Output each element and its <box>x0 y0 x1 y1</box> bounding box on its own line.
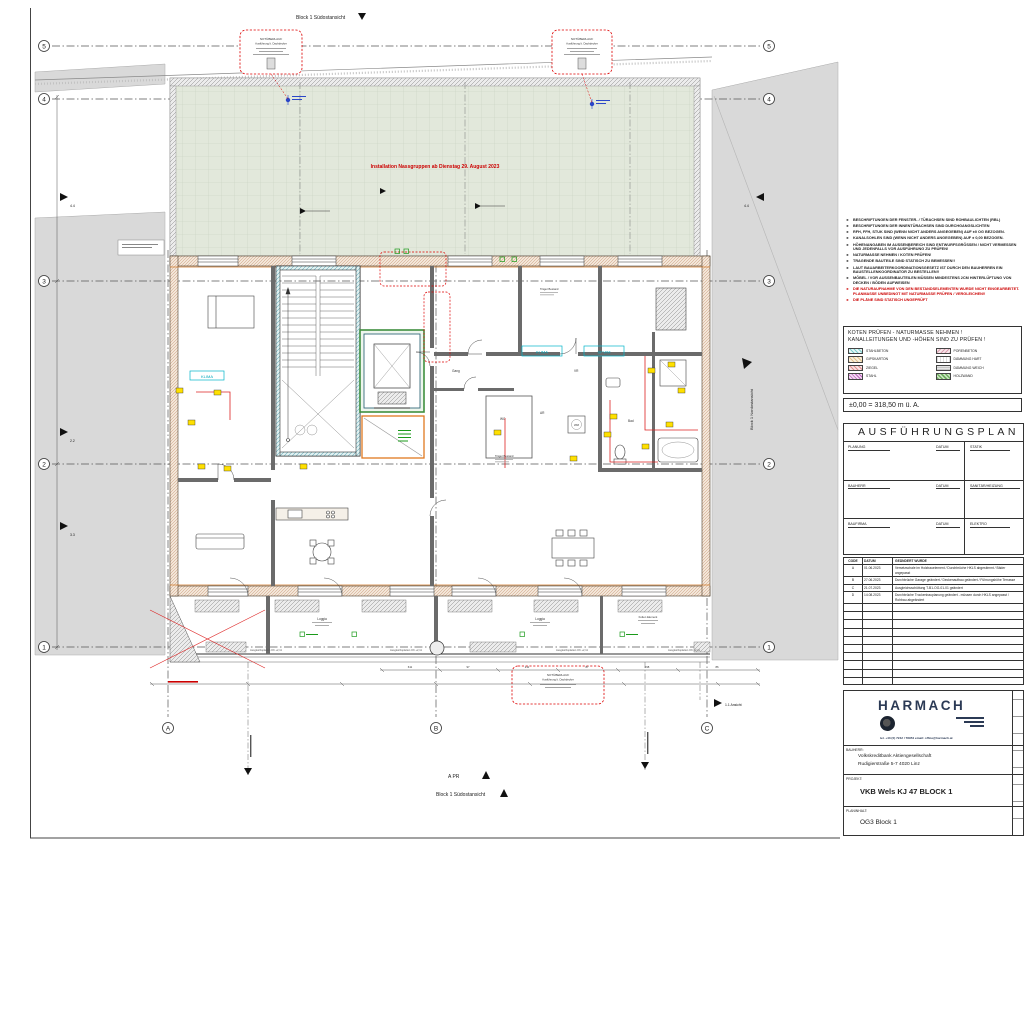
hatch-swatch <box>936 356 951 363</box>
svg-text:611: 611 <box>408 665 413 669</box>
company-stamp-icon <box>880 716 895 731</box>
building: KLIMA KLIMA SP.WM Loggia Loggia Folien E… <box>150 249 710 683</box>
view-label-right: Block 1 Nordostansicht <box>749 388 754 430</box>
note-item-warning: ►DIE PLÄNE SIND STATISCH UNGEPRÜFT <box>846 298 1024 303</box>
hatch-swatch <box>848 356 863 363</box>
note-item: ►TRAGENDE BAUTEILE SIND STATISCH ZU BEME… <box>846 259 1024 264</box>
materials-legend-box: KOTEN PRÜFEN - NATURMASSE NEHMEN ! KANAL… <box>843 326 1022 394</box>
bauherr-section: BAUHERR: Volkskreditbank Aktiengesellsch… <box>844 746 1023 775</box>
approval-row-planung: PLANUNG DATUM STATIK <box>844 442 1023 481</box>
klima-label: KLIMA <box>201 374 213 379</box>
roof-terrace: Installation Nassgruppen ab Dienstag 29.… <box>170 78 700 256</box>
bauherr-address: Rudigierstraße 5-7 4020 Linz <box>858 761 931 769</box>
cutoff-column <box>1012 691 1023 835</box>
axis-row-2: 2 <box>42 461 46 468</box>
revision-row: C 21.07.2023 Ausgleichsschüttung T-B1-OG… <box>844 585 1023 592</box>
note-item: ►MÖBEL / VOR AUSSENBAUTEILEN MÜSSEN MIND… <box>846 276 1024 285</box>
legend-item: DÄMMUNG WEICH <box>936 365 1018 372</box>
hatch-swatch <box>936 348 951 355</box>
approval-row-bauherr: BAUHERR DATUM SANITÄR/HEIZUNG <box>844 481 1023 520</box>
svg-text:86: 86 <box>715 665 719 669</box>
svg-text:3.3: 3.3 <box>70 533 75 537</box>
revision-row-empty <box>844 629 1023 637</box>
company-logo: HARMACH <box>878 698 965 713</box>
svg-text:Ausgleichsplatten OK +2,11: Ausgleichsplatten OK +2,11 <box>556 648 588 652</box>
legend-item: HOLZWAND <box>936 373 1018 380</box>
svg-text:Ausführung lt. Dachdecker: Ausführung lt. Dachdecker <box>255 42 287 46</box>
svg-text:5: 5 <box>767 43 771 50</box>
svg-text:87: 87 <box>585 665 589 669</box>
axis-row-4: 4 <box>42 96 46 103</box>
hatch-swatch <box>848 348 863 355</box>
svg-text:4.4: 4.4 <box>70 204 75 208</box>
revision-row: D 14.08.2023 Durchbrüche Trockenbauplanu… <box>844 592 1023 604</box>
ansicht-label: 1.1 Ansicht <box>725 703 742 707</box>
revision-row-empty <box>844 637 1023 645</box>
note-item: ►KANALSOHLEN SIND (WENN NICHT ANDERS ANG… <box>846 236 1024 241</box>
revision-row-empty <box>844 645 1023 653</box>
legend-item: STAHLBETON <box>848 348 930 355</box>
legend-title-1: KOTEN PRÜFEN - NATURMASSE NEHMEN ! <box>848 330 1017 337</box>
bauherr-name: Volkskreditbank Aktiengesellschaft <box>858 753 931 761</box>
note-item-warning: ►DIE NATURAUFNAHME VON DEN BESTANDSELEME… <box>846 287 1024 296</box>
wc-label: WC <box>500 417 506 421</box>
revision-row-empty <box>844 604 1023 612</box>
hatch-swatch <box>848 373 863 380</box>
loggia <box>170 596 710 662</box>
titleblock-header: AUSFÜHRUNGSPLAN <box>844 424 1023 442</box>
projekt-section: PROJEKT: VKB Wels KJ 47 BLOCK 1 <box>844 775 1023 807</box>
view-label-apr: A PR <box>448 774 460 780</box>
titleblock-approvals: AUSFÜHRUNGSPLAN PLANUNG DATUM STATIK BAU… <box>843 423 1024 555</box>
hatch-swatch <box>936 373 951 380</box>
revision-row-empty <box>844 620 1023 628</box>
svg-text:298: 298 <box>645 665 650 669</box>
titleblock-company: HARMACH tel. +43 (0) 7242 / 78954 email:… <box>843 690 1024 836</box>
legend-item: STAHL <box>848 373 930 380</box>
interior-walls <box>178 266 702 586</box>
legend-item: GIPSKARTON <box>848 356 930 363</box>
revision-row-empty <box>844 612 1023 620</box>
shaft <box>362 416 424 458</box>
revision-row: B 27.06.2023 Durchbrüche Garage geändert… <box>844 577 1023 584</box>
note-item: ►LAUT BAUARBEITERKOORDINATIONSGESETZ IST… <box>846 266 1024 275</box>
view-label-bottom: Block 1 Südostansicht <box>436 792 486 798</box>
note-item: ►RFH, FFH, STUK SIND (WENN NICHT ANDERS … <box>846 230 1024 235</box>
revision-row-empty <box>844 670 1023 678</box>
elevator <box>360 330 424 412</box>
note-item: ►BESCHRIFTUNGEN DER FENSTER- / TÜRACHSEN… <box>846 218 1024 223</box>
company-logo-section: HARMACH tel. +43 (0) 7242 / 78954 email:… <box>844 691 1023 746</box>
note-item: ►NATURMASSE NEHMEN / KOTEN PRÜFEN! <box>846 253 1024 258</box>
datum-level-box: ±0,00 = 318,50 m ü. A. <box>843 398 1022 412</box>
svg-text:Ausgleichsplatten OK +2,11: Ausgleichsplatten OK +2,11 <box>390 648 422 652</box>
axis-row-1: 1 <box>42 644 46 651</box>
svg-text:NOTÜBERLAUF: NOTÜBERLAUF <box>571 37 594 41</box>
plan-content: OG3 Block 1 <box>860 819 897 826</box>
wc-room <box>486 396 532 458</box>
bad-label: Bad <box>628 419 634 423</box>
loggia-label-2: Loggia <box>535 617 545 621</box>
loggia-label-1: Loggia <box>317 617 327 621</box>
axis-row-5: 5 <box>42 43 46 50</box>
company-contact: tel. +43 (0) 7242 / 78954 email: office@… <box>880 736 953 740</box>
axis-col-b: B <box>434 725 438 732</box>
survey-markers <box>300 249 638 637</box>
terrace-note: Installation Nassgruppen ab Dienstag 29.… <box>371 164 500 170</box>
revision-row-empty <box>844 661 1023 669</box>
gang-label: Gang <box>452 369 460 373</box>
svg-text:1: 1 <box>767 644 771 651</box>
svg-text:Ausführung lt. Dachdecker: Ausführung lt. Dachdecker <box>566 42 598 46</box>
svg-text:3: 3 <box>767 278 771 285</box>
svg-text:Folien Element: Folien Element <box>639 615 658 619</box>
general-notes: ►BESCHRIFTUNGEN DER FENSTER- / TÜRACHSEN… <box>846 218 1024 304</box>
hatch-swatch <box>848 365 863 372</box>
plan-sheet: { "sheet": { "axis_rows": ["5","4","3","… <box>0 0 1024 1024</box>
legend-title-2: KANALLEITUNGEN UND -HÖHEN SIND ZU PRÜFEN… <box>848 337 1017 344</box>
revision-table: CODE DATUM GEÄNDERT WURDE A 01.06.2023 V… <box>843 557 1024 685</box>
spwm-label: SP.WM <box>597 349 610 354</box>
axis-row-3: 3 <box>42 278 46 285</box>
svg-text:Ausführung lt. Dachdecker: Ausführung lt. Dachdecker <box>542 678 574 682</box>
svg-text:4: 4 <box>767 96 771 103</box>
planinhalt-section: PLANINHALT: OG3 Block 1 <box>844 807 1023 836</box>
svg-text:Ausgleichsplatten OK +2,11: Ausgleichsplatten OK +2,11 <box>250 648 282 652</box>
axis-col-a: A <box>166 725 171 732</box>
approval-row-baufirma: BAUFIRMA DATUM ELEKTRO <box>844 519 1023 555</box>
note-item: ►HÖHENANGABEN IM AUSSENBEREICH SIND ENTW… <box>846 243 1024 252</box>
stairs <box>276 266 360 456</box>
svg-text:KLIMA: KLIMA <box>536 349 548 354</box>
ar-label: AR <box>540 411 545 415</box>
svg-text:Ausgleichsplatten OK +2,11: Ausgleichsplatten OK +2,11 <box>668 648 700 652</box>
legend-item: DÄMMUNG HART <box>936 356 1018 363</box>
overflow-title: NOTÜBERLAUF <box>260 37 283 41</box>
view-label-top: Block 1 Südostansicht <box>296 15 346 21</box>
revision-row: A 01.06.2023 Versetzschale im Holzbauele… <box>844 565 1023 577</box>
svg-text:2.2: 2.2 <box>70 439 75 443</box>
hatch-swatch <box>936 365 951 372</box>
axis-col-c: C <box>705 725 710 732</box>
revision-row-empty <box>844 653 1023 661</box>
revision-row-empty <box>844 678 1023 685</box>
vr-label: VR <box>574 369 579 373</box>
svg-text:4.4: 4.4 <box>744 204 749 208</box>
revision-header: CODE DATUM GEÄNDERT WURDE <box>844 558 1023 565</box>
wm-label: WM <box>574 423 580 427</box>
svg-text:2: 2 <box>767 461 771 468</box>
svg-text:Träger Bestand: Träger Bestand <box>495 454 514 458</box>
legend-item: ZIEGEL <box>848 365 930 372</box>
legend-item: PORENBETON <box>936 348 1018 355</box>
project-title: VKB Wels KJ 47 BLOCK 1 <box>860 787 952 796</box>
note-item: ►BESCHRIFTUNGEN DER INNENTÜRACHSEN SIND … <box>846 224 1024 229</box>
svg-text:NOTÜBERLAUF: NOTÜBERLAUF <box>547 673 570 677</box>
svg-text:97: 97 <box>466 665 470 669</box>
svg-text:211: 211 <box>525 665 530 669</box>
svg-text:Träger Bestand: Träger Bestand <box>540 287 559 291</box>
